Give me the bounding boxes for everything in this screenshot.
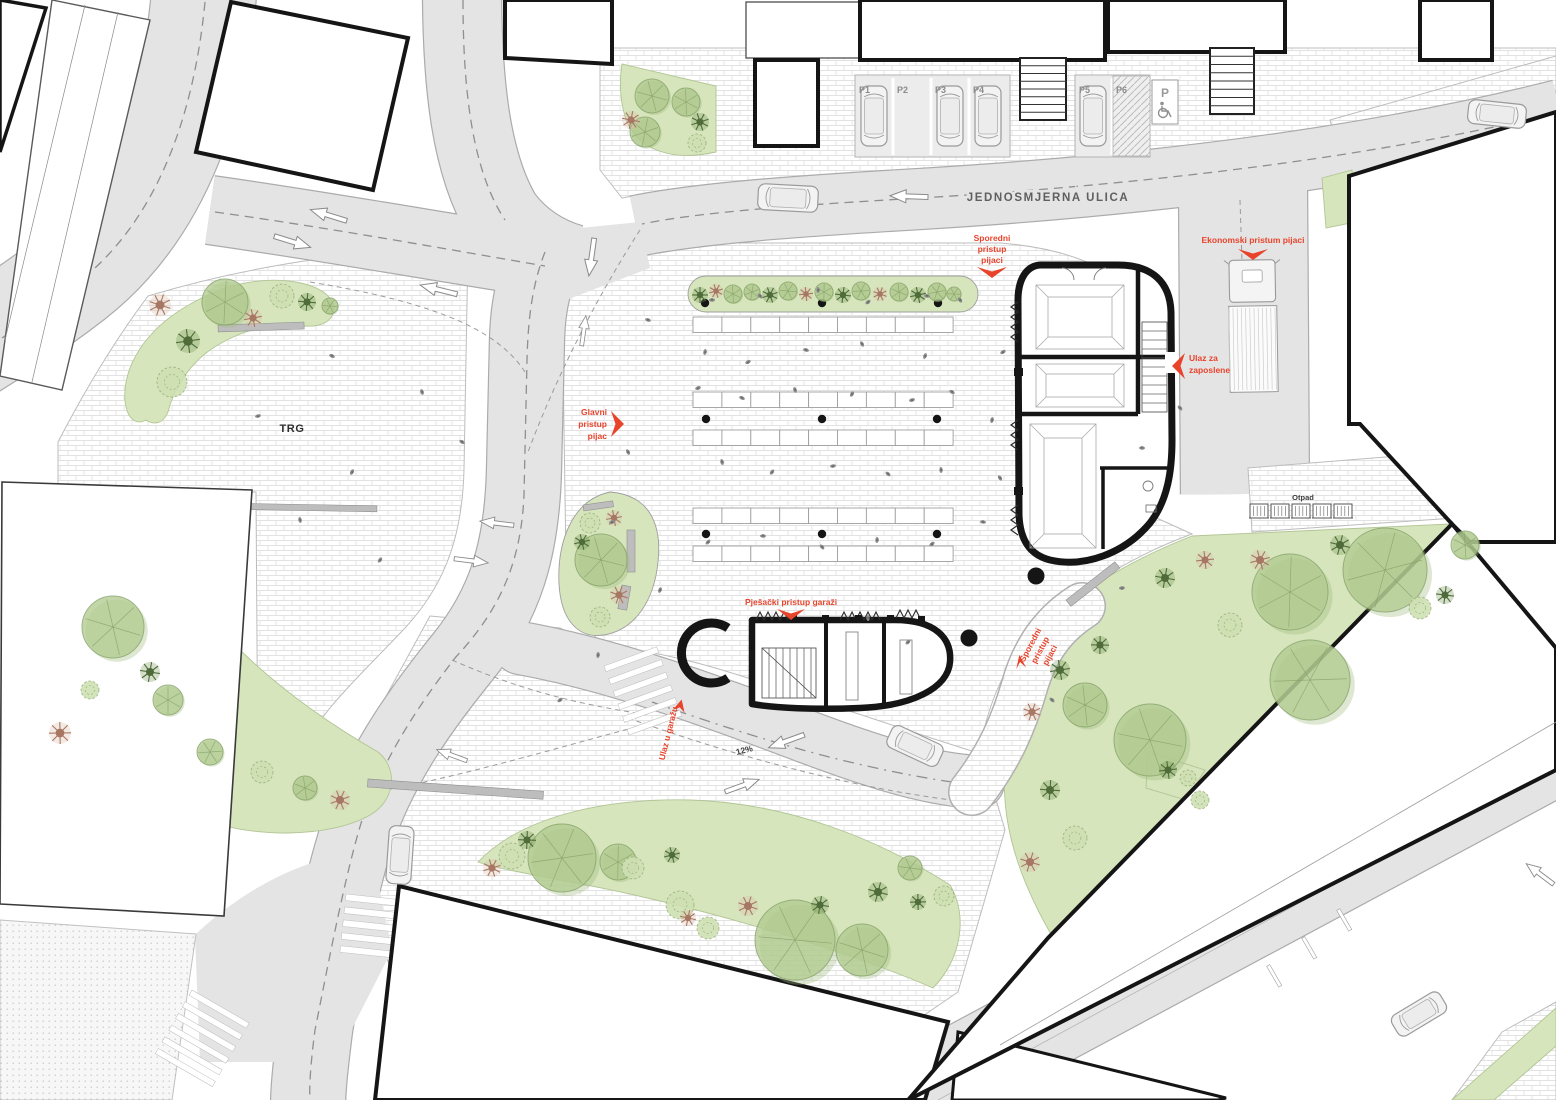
stairs <box>1020 58 1066 120</box>
tree-icon <box>910 894 926 910</box>
site-plan: JEDNOSMJERNA ULICA TRG Otpad 12% Sporedn… <box>0 0 1556 1100</box>
road-arrow-icon <box>1523 859 1556 889</box>
market-stall <box>838 430 867 446</box>
svg-text:Ulaz za: Ulaz za <box>1189 353 1218 363</box>
market-stall <box>722 317 751 333</box>
market-stall <box>751 430 780 446</box>
tree-icon <box>1409 597 1431 619</box>
market-stall <box>693 317 722 333</box>
building-top-a2 <box>505 0 612 64</box>
svg-text:Sporedni: Sporedni <box>974 233 1011 243</box>
delivery-truck <box>1224 260 1282 393</box>
tree-icon <box>140 662 160 682</box>
column-dot <box>702 415 710 423</box>
car-icon <box>1080 86 1106 146</box>
market-stall <box>866 430 895 446</box>
market-stall <box>780 430 809 446</box>
tree-icon <box>1063 826 1087 850</box>
tree-icon <box>81 681 99 699</box>
tree-icon <box>799 287 813 301</box>
tree-icon <box>688 134 706 152</box>
market-stall <box>895 317 924 333</box>
market-stall <box>751 508 780 524</box>
market-stall <box>780 546 809 562</box>
market-stall <box>780 317 809 333</box>
column-dot <box>702 530 710 538</box>
tree-icon <box>1180 770 1196 786</box>
tree-icon <box>590 607 610 627</box>
market-stall <box>693 430 722 446</box>
market-stall <box>693 546 722 562</box>
column-dot <box>818 530 826 538</box>
market-stall <box>693 392 722 408</box>
market-stall <box>895 430 924 446</box>
car-icon <box>757 183 818 212</box>
parking-space-label: P2 <box>897 85 908 95</box>
tree-icon <box>580 513 600 533</box>
tree-icon <box>1091 636 1109 654</box>
svg-text:pristup: pristup <box>578 419 607 429</box>
market-stall <box>722 430 751 446</box>
tree-icon <box>738 896 758 916</box>
otpad-label: Otpad <box>1292 493 1314 502</box>
svg-text:pijaci: pijaci <box>981 255 1003 265</box>
market-stall <box>838 317 867 333</box>
waste-container-icon <box>1249 504 1269 518</box>
tree-icon <box>622 111 640 129</box>
svg-text:pristup: pristup <box>978 244 1007 254</box>
parking-sign-letter: P <box>1161 86 1169 100</box>
tree-icon <box>1191 791 1209 809</box>
market-stall <box>751 317 780 333</box>
tree-icon <box>1040 780 1060 800</box>
tree-icon <box>622 857 644 879</box>
market-stall <box>866 546 895 562</box>
market-stall <box>895 508 924 524</box>
waste-container-icon <box>1312 504 1332 518</box>
tree-icon <box>910 287 926 303</box>
market-entrance-east <box>1165 352 1177 373</box>
building-top-b <box>755 60 818 146</box>
market-stall <box>751 392 780 408</box>
column-dot <box>933 415 941 423</box>
tree-icon <box>709 284 723 298</box>
tree-icon <box>1155 568 1175 588</box>
market-stall <box>924 392 953 408</box>
tree-icon <box>680 910 696 926</box>
car-icon <box>1389 989 1449 1038</box>
column-dot <box>818 415 826 423</box>
tree-icon <box>244 309 262 327</box>
waste-container-icon <box>1270 504 1290 518</box>
tree-icon <box>664 847 680 863</box>
market-stall <box>722 546 751 562</box>
market-stall <box>866 317 895 333</box>
waste-containers <box>1249 504 1353 518</box>
tree-icon <box>251 761 273 783</box>
tree-dot <box>961 630 978 647</box>
svg-text:pijac: pijac <box>588 431 608 441</box>
market-stall <box>924 430 953 446</box>
car-icon <box>975 86 1001 146</box>
tree-icon <box>1196 551 1214 569</box>
tree-icon <box>499 843 525 869</box>
tree-icon <box>762 287 778 303</box>
market-stall <box>895 546 924 562</box>
building-nw <box>196 2 408 190</box>
column-dot <box>933 530 941 538</box>
tree-icon <box>574 534 590 550</box>
svg-text:Ekonomski pristum pijaci: Ekonomski pristum pijaci <box>1202 235 1305 245</box>
tree-icon <box>610 586 628 604</box>
tree-icon <box>724 285 743 304</box>
dotted-parking-area <box>0 920 196 1100</box>
tree-icon <box>157 367 187 397</box>
tree-icon <box>606 510 622 526</box>
market-stall <box>866 392 895 408</box>
building-top-d <box>1108 0 1285 52</box>
market-stall <box>924 317 953 333</box>
one-way-street-label: JEDNOSMJERNA ULICA <box>967 192 1130 204</box>
market-stall <box>866 508 895 524</box>
car-icon <box>937 86 963 146</box>
disabled-parking-sign: P <box>1152 80 1178 124</box>
market-stall <box>809 430 838 446</box>
tree-icon <box>1050 660 1070 680</box>
tree-icon <box>176 329 200 353</box>
tree-icon <box>1250 550 1270 570</box>
trg-label: TRG <box>279 423 304 435</box>
market-stall <box>751 546 780 562</box>
tree-icon <box>1330 535 1350 555</box>
tree-icon <box>483 859 501 877</box>
tree-icon <box>270 284 294 308</box>
car-icon <box>861 86 887 146</box>
tree-icon <box>518 831 536 849</box>
market-stall <box>722 508 751 524</box>
tree-icon <box>330 790 350 810</box>
market-stall <box>722 392 751 408</box>
tree-icon <box>890 283 909 302</box>
tree-icon <box>1436 586 1454 604</box>
tree-icon <box>811 896 829 914</box>
market-stall <box>809 508 838 524</box>
parking-space-label: P4 <box>973 85 984 95</box>
tree-icon <box>322 298 339 315</box>
tree-icon <box>1159 761 1177 779</box>
person-icon <box>709 298 715 301</box>
market-stall <box>780 508 809 524</box>
market-stall <box>838 546 867 562</box>
market-stall <box>838 508 867 524</box>
tree-icon <box>779 282 798 301</box>
building-west-big <box>0 482 252 916</box>
tree-icon <box>1218 613 1242 637</box>
car-icon <box>386 825 415 885</box>
tree-icon <box>49 722 71 744</box>
parking-space-label: P3 <box>935 85 946 95</box>
waste-container-icon <box>1333 504 1353 518</box>
tree-icon <box>697 917 719 939</box>
market-stall <box>809 392 838 408</box>
stairs <box>1210 48 1254 114</box>
building-top-e <box>1420 0 1492 60</box>
tree-icon <box>868 882 888 902</box>
tree-icon <box>298 293 316 311</box>
parking-space-label: P6 <box>1116 85 1127 95</box>
waste-container-icon <box>1291 504 1311 518</box>
market-stall <box>924 546 953 562</box>
market-stall <box>809 317 838 333</box>
tree-icon <box>928 283 947 302</box>
building-top-c <box>860 0 1105 60</box>
parking-space-label: P5 <box>1079 85 1090 95</box>
tree-icon <box>1023 703 1041 721</box>
tree-icon <box>934 886 954 906</box>
tree-icon <box>744 284 761 301</box>
svg-text:zaposlene: zaposlene <box>1189 365 1230 375</box>
tree-icon <box>873 287 887 301</box>
tree-icon <box>852 282 871 301</box>
market-stall <box>924 508 953 524</box>
tree-icon <box>691 113 709 131</box>
parking-space-label: P1 <box>859 85 870 95</box>
svg-text:Pješački pristup garaži: Pješački pristup garaži <box>745 597 837 607</box>
tree-dot <box>1028 568 1045 585</box>
tree-icon <box>835 287 851 303</box>
tree-icon <box>149 294 171 316</box>
market-hall <box>1011 265 1177 562</box>
tree-icon <box>1020 852 1040 872</box>
svg-text:Glavni: Glavni <box>581 407 607 417</box>
market-stall <box>780 392 809 408</box>
tree-icon <box>692 287 708 303</box>
market-stall <box>693 508 722 524</box>
